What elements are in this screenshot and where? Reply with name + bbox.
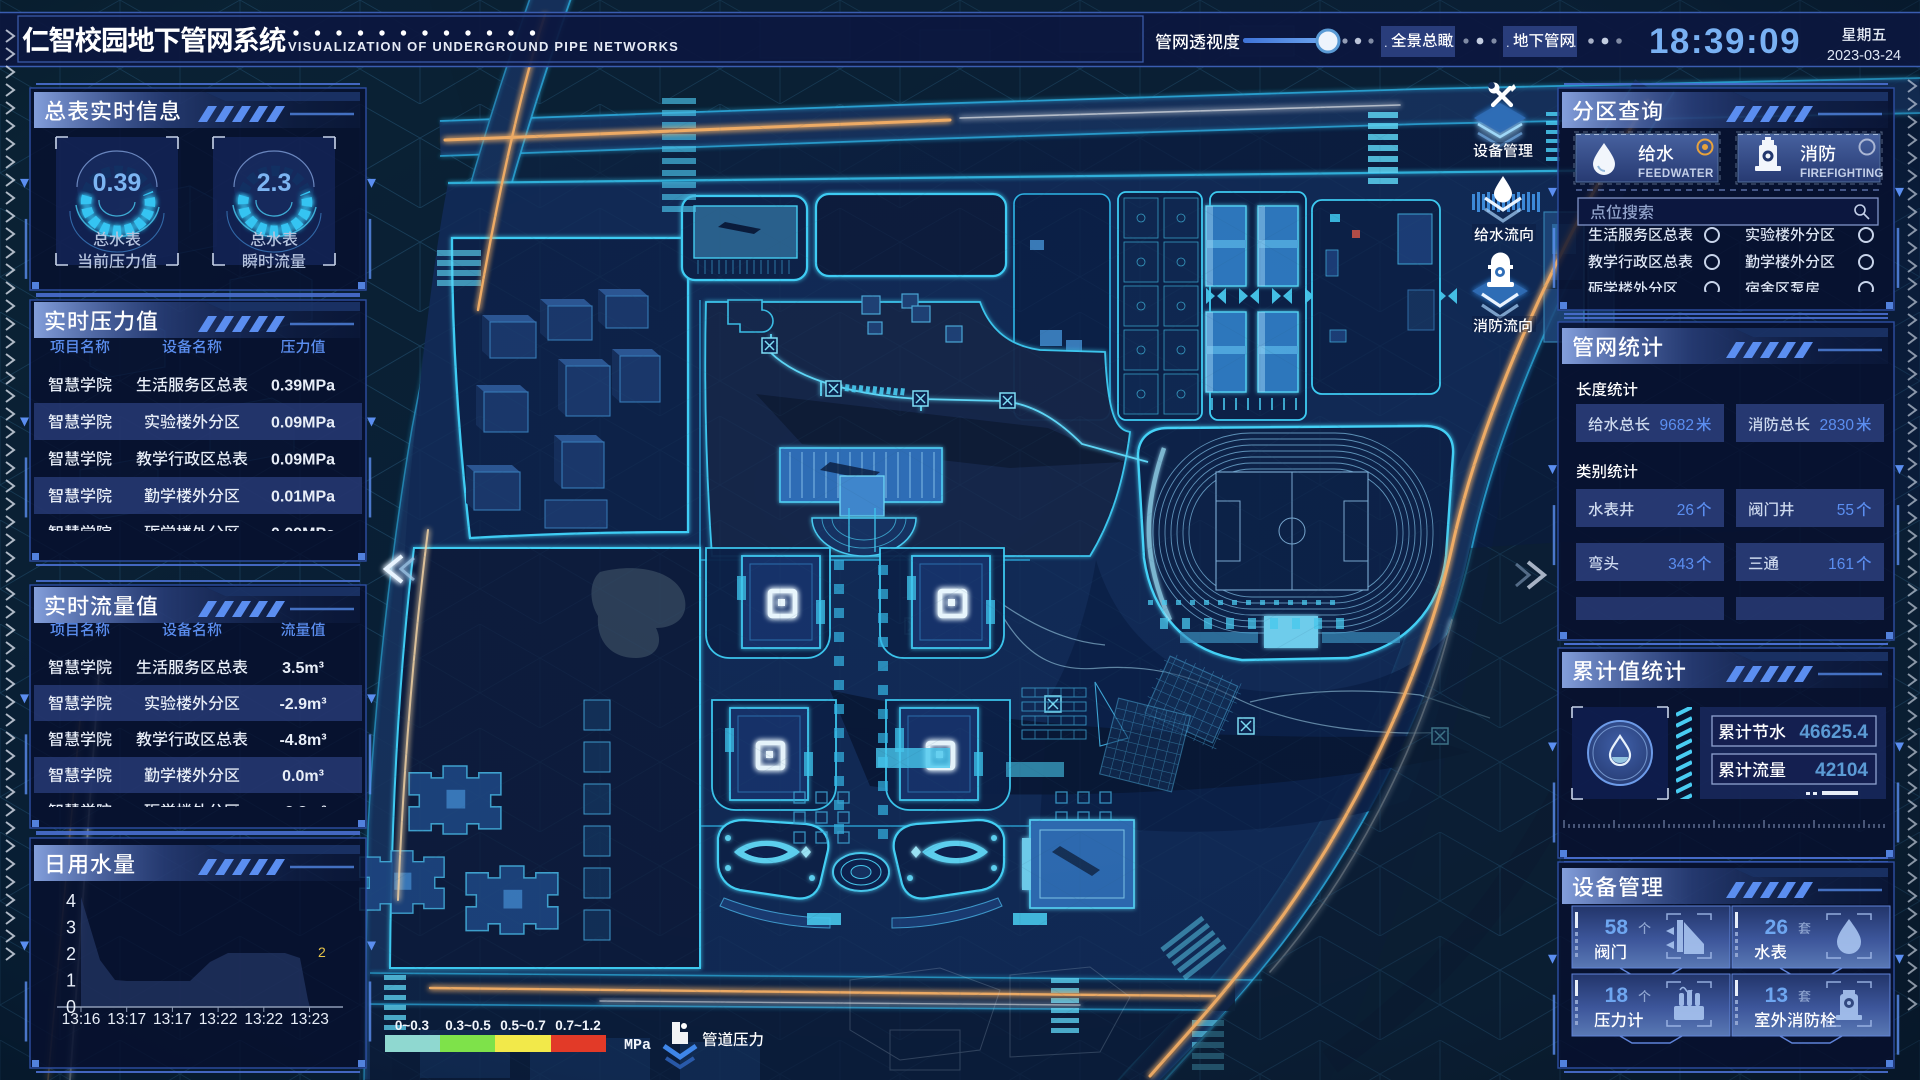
svg-text:13:16: 13:16	[62, 1011, 101, 1028]
svg-text:2.3: 2.3	[257, 169, 292, 197]
svg-text:.: .	[1451, 35, 1455, 50]
svg-text:46625.4: 46625.4	[1799, 722, 1868, 743]
svg-text:-2.9m³: -2.9m³	[279, 696, 326, 713]
svg-text:0~0.3: 0~0.3	[395, 1018, 430, 1033]
svg-text:-4.8m³: -4.8m³	[279, 732, 326, 749]
svg-text:13:22: 13:22	[199, 1011, 238, 1028]
svg-text:343: 343	[1668, 556, 1694, 573]
svg-text:0.3~0.5: 0.3~0.5	[445, 1018, 491, 1033]
svg-text:26: 26	[1677, 502, 1694, 519]
svg-text:0.09MPa: 0.09MPa	[271, 452, 335, 469]
svg-text:2: 2	[318, 944, 326, 960]
svg-text:0.7~1.2: 0.7~1.2	[555, 1018, 600, 1033]
svg-text:161: 161	[1828, 556, 1854, 573]
svg-text:0.0m³: 0.0m³	[282, 768, 324, 785]
svg-text:13:22: 13:22	[244, 1011, 283, 1028]
svg-text:13: 13	[1765, 984, 1788, 1007]
svg-text:9682: 9682	[1660, 417, 1694, 434]
svg-text:2830: 2830	[1820, 417, 1855, 434]
svg-text:0.5~0.7: 0.5~0.7	[500, 1018, 545, 1033]
svg-text:26: 26	[1765, 916, 1788, 939]
svg-text:2023-03-24: 2023-03-24	[1827, 48, 1901, 64]
svg-text:13:17: 13:17	[153, 1011, 192, 1028]
svg-text:4: 4	[66, 891, 76, 911]
svg-text:0.39MPa: 0.39MPa	[271, 378, 335, 395]
svg-text:0.39: 0.39	[93, 169, 142, 197]
svg-text:VISUALIZATION OF UNDERGROUND: VISUALIZATION OF UNDERGROUND PIPE NETWOR…	[288, 39, 679, 54]
svg-text:2: 2	[66, 944, 76, 964]
svg-text:3.5m³: 3.5m³	[282, 660, 324, 677]
svg-text:55: 55	[1837, 502, 1854, 519]
svg-text:18:39:09: 18:39:09	[1649, 22, 1801, 61]
svg-text:13:23: 13:23	[290, 1011, 329, 1028]
svg-text:.: .	[1506, 35, 1510, 50]
svg-text:1: 1	[66, 971, 76, 991]
svg-text:FEEDWATER: FEEDWATER	[1638, 168, 1714, 180]
svg-text:FIREFIGHTING: FIREFIGHTING	[1800, 168, 1884, 180]
svg-text:0.01MPa: 0.01MPa	[271, 489, 335, 506]
svg-text:MPa: MPa	[624, 1037, 651, 1054]
svg-text:58: 58	[1605, 916, 1629, 939]
svg-text:18: 18	[1605, 984, 1629, 1007]
svg-text:42104: 42104	[1815, 760, 1868, 781]
svg-text:.: .	[1384, 35, 1388, 50]
svg-text:.: .	[1573, 35, 1577, 50]
svg-text:0.09MPa: 0.09MPa	[271, 415, 335, 432]
svg-text:3: 3	[66, 918, 76, 938]
svg-text:13:17: 13:17	[107, 1011, 146, 1028]
